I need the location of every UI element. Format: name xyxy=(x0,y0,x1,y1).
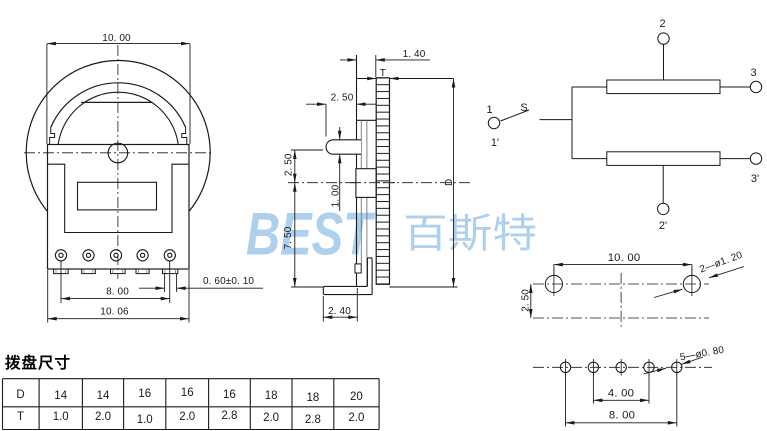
svg-text:T: T xyxy=(17,411,24,423)
svg-text:S: S xyxy=(520,102,527,114)
svg-text:2.0: 2.0 xyxy=(263,412,279,424)
svg-text:2. 40: 2. 40 xyxy=(328,306,351,317)
svg-text:8. 00: 8. 00 xyxy=(609,410,635,422)
svg-text:2.0: 2.0 xyxy=(179,411,195,423)
svg-text:1.0: 1.0 xyxy=(137,414,153,426)
svg-text:1': 1' xyxy=(491,137,499,149)
svg-text:20: 20 xyxy=(350,391,363,403)
svg-text:D: D xyxy=(444,179,455,186)
svg-text:16: 16 xyxy=(223,389,236,401)
svg-text:4. 00: 4. 00 xyxy=(608,388,634,400)
svg-text:7. 50: 7. 50 xyxy=(283,226,294,249)
svg-text:2: 2 xyxy=(659,18,665,30)
svg-text:2.0: 2.0 xyxy=(348,412,364,424)
svg-text:16: 16 xyxy=(138,388,151,400)
svg-text:1. 00: 1. 00 xyxy=(331,184,342,207)
svg-text:D: D xyxy=(16,389,24,401)
svg-text:16: 16 xyxy=(181,387,194,399)
svg-text:10. 06: 10. 06 xyxy=(100,307,129,318)
svg-text:10. 00: 10. 00 xyxy=(102,33,131,44)
svg-text:10. 00: 10. 00 xyxy=(608,252,641,264)
svg-text:2. 50: 2. 50 xyxy=(284,153,295,176)
svg-text:百斯特: 百斯特 xyxy=(403,212,537,256)
svg-text:14: 14 xyxy=(97,390,110,402)
svg-text:3: 3 xyxy=(750,67,756,79)
svg-text:8. 00: 8. 00 xyxy=(106,287,129,298)
svg-text:18: 18 xyxy=(265,390,278,402)
svg-text:3': 3' xyxy=(751,173,759,185)
svg-text:14: 14 xyxy=(54,390,67,402)
svg-text:1. 40: 1. 40 xyxy=(403,49,426,60)
svg-text:0. 60±0. 10: 0. 60±0. 10 xyxy=(203,276,254,287)
svg-text:1: 1 xyxy=(486,104,492,116)
svg-text:2.0: 2.0 xyxy=(95,411,111,423)
svg-text:2. 50: 2. 50 xyxy=(331,93,354,104)
svg-text:T: T xyxy=(380,68,386,79)
svg-text:1.0: 1.0 xyxy=(53,411,69,423)
svg-text:2—ø1. 20: 2—ø1. 20 xyxy=(698,250,744,276)
svg-text:2': 2' xyxy=(659,220,667,232)
svg-text:2. 50: 2. 50 xyxy=(521,289,532,312)
svg-text:2.8: 2.8 xyxy=(305,414,321,426)
svg-text:2.8: 2.8 xyxy=(221,410,237,422)
svg-text:18: 18 xyxy=(307,392,320,404)
svg-text:5—ø0. 80: 5—ø0. 80 xyxy=(679,345,725,364)
svg-text:拨盘尺寸: 拨盘尺寸 xyxy=(5,353,71,372)
